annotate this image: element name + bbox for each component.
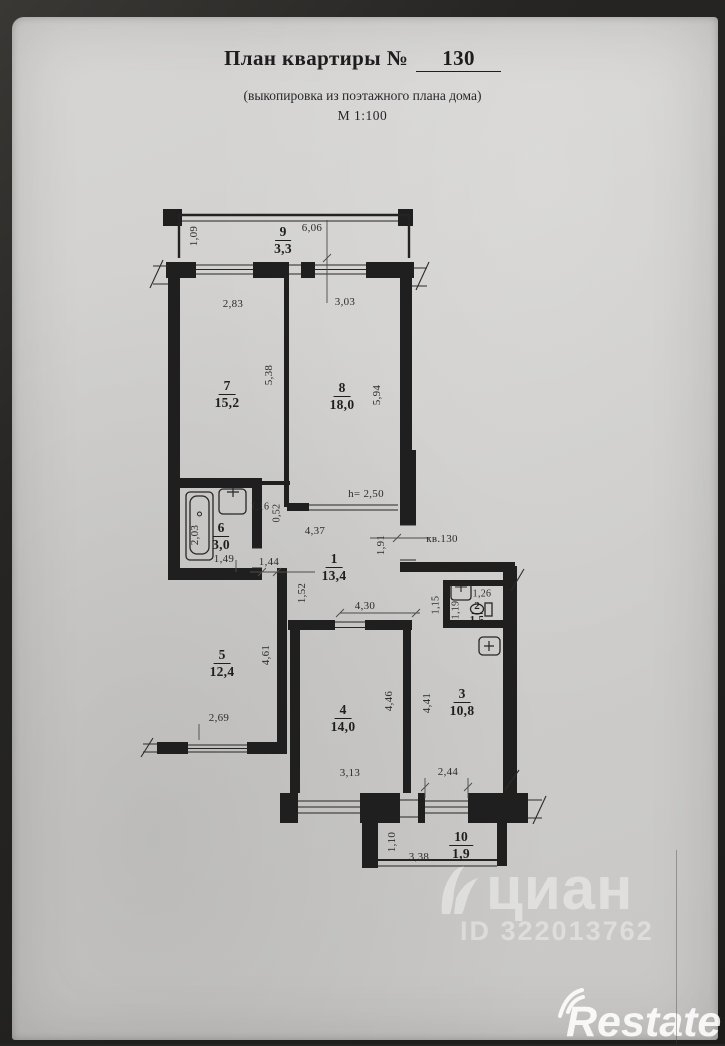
- dim-balcony-bottom-width: 3,38: [409, 851, 429, 863]
- dim-bath-length: 2,03: [189, 525, 201, 545]
- dim-room7-depth: 5,38: [263, 365, 275, 385]
- dim-bath-niche-width: 1,16: [251, 502, 270, 513]
- dim-wc-duct-depth: 1,15: [431, 596, 442, 615]
- room-label-3: 3 10,8: [450, 686, 475, 718]
- dim-room5-door-opening: 1,44: [259, 556, 279, 568]
- cian-logo-text: циан: [486, 862, 633, 916]
- room-label-7: 7 15,2: [215, 378, 240, 410]
- dim-balcony-top-depth: 1,09: [188, 226, 200, 246]
- dim-room8-width: 3,03: [335, 296, 355, 308]
- room-label-8: 8 18,0: [330, 380, 355, 412]
- dim-balcony-top-width: 6,06: [302, 222, 322, 234]
- dim-bath-niche-depth: 0,52: [272, 504, 283, 523]
- cian-watermark: циан: [436, 862, 633, 916]
- apartment-entry-label: кв.130: [426, 533, 458, 545]
- dim-room3-depth: 4,41: [421, 693, 433, 713]
- cian-logo-icon: [436, 864, 482, 916]
- dim-entry-opening: 1,91: [375, 535, 387, 555]
- listing-id-watermark: ID 322013762: [460, 916, 654, 947]
- restate-text: Restate: [566, 1001, 721, 1044]
- dim-door-height-note: h= 2,50: [348, 488, 384, 500]
- dim-balcony-bottom-depth: 1,10: [386, 832, 398, 852]
- dim-room5-width: 2,69: [209, 712, 229, 724]
- paper-crease: [676, 850, 677, 1044]
- room-label-4: 4 14,0: [331, 702, 356, 734]
- kitchen-sink-icon: [479, 637, 500, 655]
- restate-watermark: Restate: [556, 986, 721, 1044]
- dim-hall-left-depth: 1,52: [296, 583, 308, 603]
- dim-wc-width: 1,26: [473, 589, 492, 600]
- room-label-2: 2 1,5: [470, 597, 485, 626]
- dim-room5-depth: 4,61: [260, 645, 272, 665]
- bath-sink-icon: [219, 487, 246, 514]
- dim-hall-width-top: 4,37: [305, 525, 325, 537]
- dim-bath-width: 1,49: [214, 553, 234, 565]
- dim-room8-depth: 5,94: [371, 385, 383, 405]
- dim-hall-width-bottom: 4,30: [355, 600, 375, 612]
- room-label-9: 9 3,3: [274, 224, 292, 256]
- room-label-6: 6 3,0: [212, 520, 230, 552]
- dim-room3-width: 2,44: [438, 766, 458, 778]
- floor-plan-photo: План квартиры №130 (выкопировка из поэта…: [0, 0, 725, 1044]
- room-label-5: 5 12,4: [210, 647, 235, 679]
- dim-room4-width: 3,13: [340, 767, 360, 779]
- dim-room7-width: 2,83: [223, 298, 243, 310]
- dim-wc-depth: 1,19: [451, 601, 462, 620]
- room-label-10: 10 1,9: [449, 829, 473, 861]
- room-label-1: 1 13,4: [322, 551, 347, 583]
- dim-room4-depth: 4,46: [383, 691, 395, 711]
- wall-break-marks: [141, 260, 546, 824]
